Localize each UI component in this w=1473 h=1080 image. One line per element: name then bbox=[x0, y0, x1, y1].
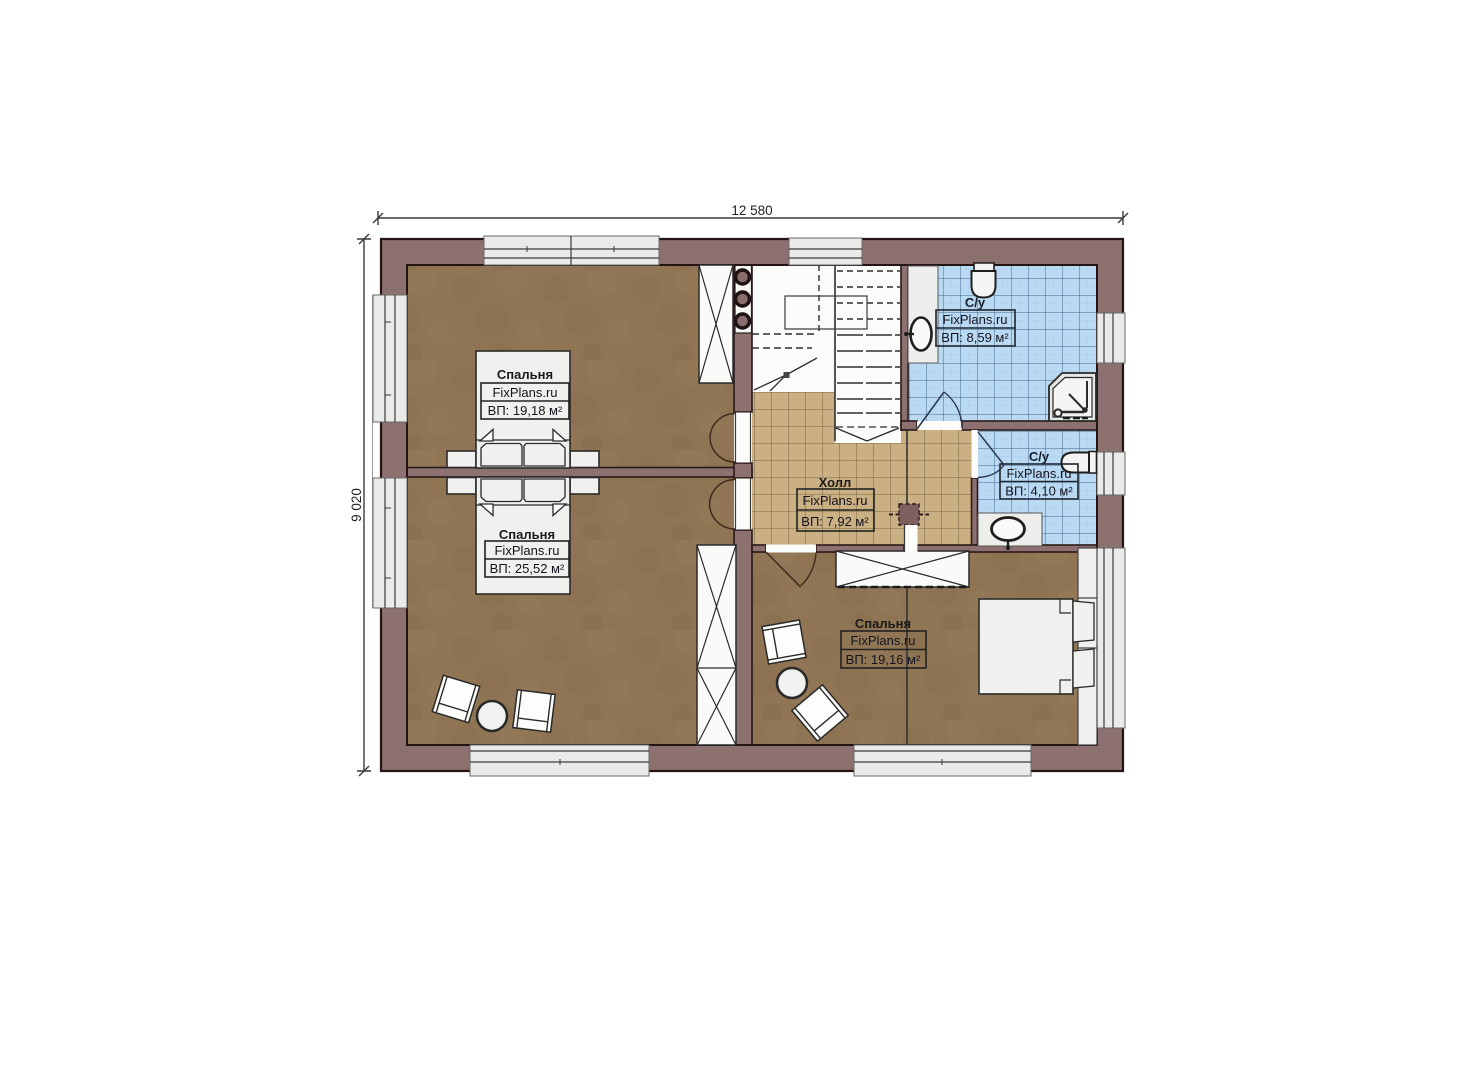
svg-text:FixPlans.ru: FixPlans.ru bbox=[1006, 466, 1071, 481]
svg-text:12 580: 12 580 bbox=[731, 203, 772, 218]
svg-text:С/у: С/у bbox=[965, 295, 986, 310]
svg-text:9 020: 9 020 bbox=[349, 488, 364, 522]
svg-text:FixPlans.ru: FixPlans.ru bbox=[942, 312, 1007, 327]
svg-text:Спальня: Спальня bbox=[497, 367, 553, 382]
svg-text:Холл: Холл bbox=[819, 475, 852, 490]
svg-text:ВП: 7,92 м²: ВП: 7,92 м² bbox=[801, 514, 869, 529]
svg-text:FixPlans.ru: FixPlans.ru bbox=[492, 385, 557, 400]
svg-text:ВП: 19,18 м²: ВП: 19,18 м² bbox=[488, 403, 563, 418]
svg-text:ВП: 25,52 м²: ВП: 25,52 м² bbox=[490, 561, 565, 576]
svg-text:ВП: 4,10 м²: ВП: 4,10 м² bbox=[1005, 484, 1073, 499]
svg-text:FixPlans.ru: FixPlans.ru bbox=[802, 493, 867, 508]
svg-text:Спальня: Спальня bbox=[499, 527, 555, 542]
svg-text:Спальня: Спальня bbox=[855, 616, 911, 631]
svg-text:FixPlans.ru: FixPlans.ru bbox=[494, 543, 559, 558]
svg-text:ВП: 8,59 м²: ВП: 8,59 м² bbox=[941, 330, 1009, 345]
svg-text:ВП: 19,16 м²: ВП: 19,16 м² bbox=[846, 652, 921, 667]
svg-text:С/у: С/у bbox=[1029, 449, 1050, 464]
svg-text:FixPlans.ru: FixPlans.ru bbox=[850, 633, 915, 648]
